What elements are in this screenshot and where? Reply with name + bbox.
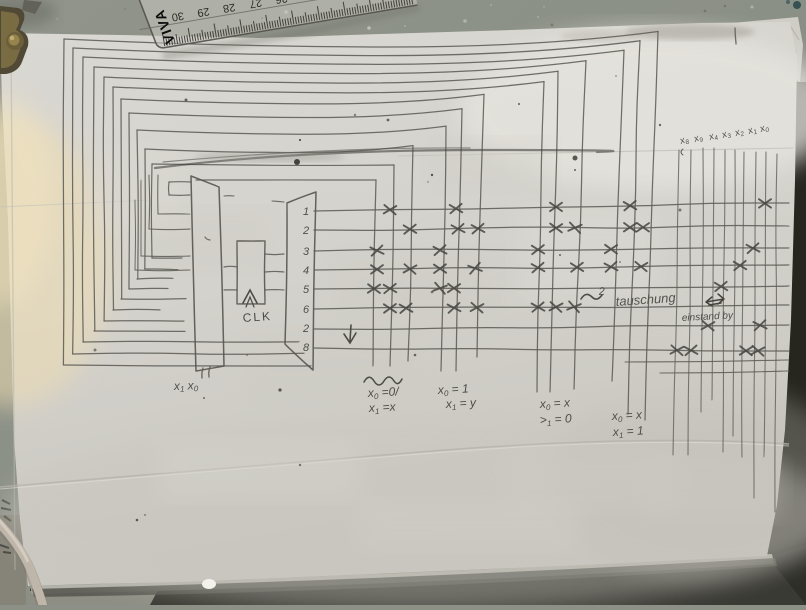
- svg-text:29: 29: [196, 5, 210, 19]
- svg-text:30: 30: [171, 9, 185, 23]
- svg-text:28: 28: [222, 0, 236, 14]
- svg-text:2: 2: [302, 225, 309, 237]
- svg-text:CLK: CLK: [242, 309, 272, 325]
- svg-text:2: 2: [302, 323, 309, 335]
- svg-text:3: 3: [303, 246, 310, 258]
- svg-text:2: 2: [597, 286, 605, 298]
- svg-text:26: 26: [274, 0, 288, 6]
- svg-text:27: 27: [249, 0, 263, 10]
- svg-text:5: 5: [303, 284, 310, 296]
- svg-text:1: 1: [303, 206, 309, 218]
- svg-text:6: 6: [303, 304, 310, 316]
- svg-text:4: 4: [303, 265, 309, 277]
- svg-text:8: 8: [303, 342, 310, 354]
